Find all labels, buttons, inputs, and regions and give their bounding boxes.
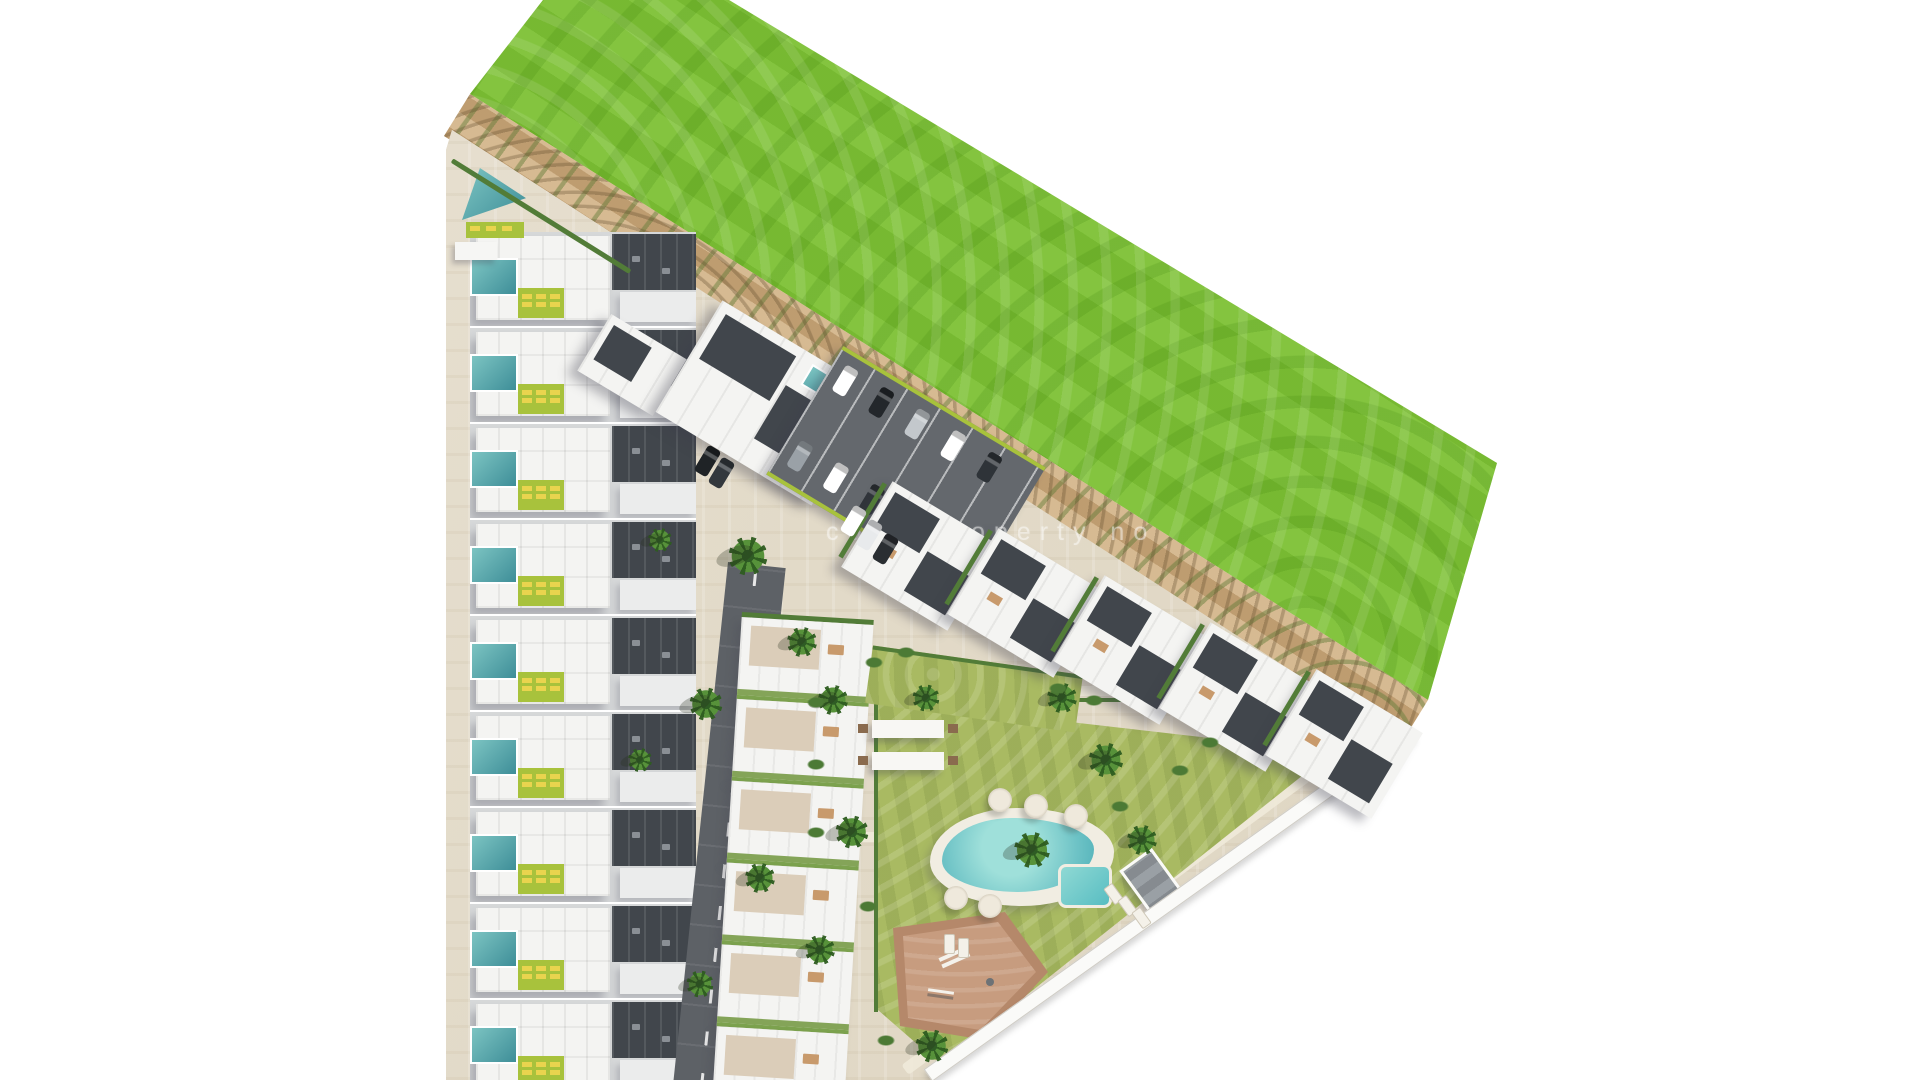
palm-tree [913, 685, 940, 712]
shrub [877, 1035, 895, 1046]
terrace-furniture [632, 928, 640, 934]
shrub [1049, 683, 1067, 694]
townhouse-lawn [518, 960, 564, 990]
townhouse-row [470, 1000, 696, 1080]
roof-terrace-beige [739, 789, 811, 833]
sun-lounger [550, 966, 560, 971]
terrace-table [823, 726, 840, 737]
palm-tree [648, 528, 672, 552]
umbrella [1064, 804, 1088, 828]
terrace-furniture [632, 256, 640, 262]
sun-lounger [536, 486, 546, 491]
terrace-table [808, 972, 825, 983]
sun-lounger [550, 582, 560, 587]
sun-lounger [522, 390, 532, 395]
pergola [872, 720, 944, 738]
roof-terrace-beige [724, 1035, 796, 1079]
terrace-furniture [632, 736, 640, 742]
terrace-furniture [632, 1024, 640, 1030]
shrub [1171, 765, 1189, 776]
sun-lounger [522, 582, 532, 587]
townhouse-pool [470, 546, 518, 584]
townhouse-row [470, 616, 696, 712]
terrace-furniture [662, 844, 670, 850]
sun-lounger [550, 678, 560, 683]
sun-lounger [522, 678, 532, 683]
middle-apartment-row [732, 699, 869, 789]
middle-apartment-row [712, 1026, 849, 1080]
car [867, 386, 895, 419]
umbrella [1024, 794, 1048, 818]
terrace-table [813, 890, 830, 901]
palm-tree [690, 688, 723, 721]
terrace-furniture [632, 448, 640, 454]
palm-tree [687, 971, 714, 998]
sun-lounger [536, 390, 546, 395]
townhouse-row [470, 904, 696, 1000]
palm-tree [836, 816, 869, 849]
car [786, 440, 814, 473]
shrub [897, 647, 915, 658]
palm-tree [1127, 825, 1157, 855]
sun-lounger [550, 294, 560, 299]
terrace-furniture [662, 460, 670, 466]
terrace-furniture [632, 640, 640, 646]
roof-terrace-dark [593, 325, 651, 382]
townhouse-roof-terrace [612, 810, 696, 866]
shrub [1085, 695, 1103, 706]
townhouse-row [470, 808, 696, 904]
townhouse-pool [470, 354, 518, 392]
sun-lounger [470, 226, 480, 231]
sun-lounger [486, 226, 496, 231]
pergola [872, 752, 944, 770]
palm-tree [787, 627, 817, 657]
townhouse-pool [470, 642, 518, 680]
terrace-furniture [662, 268, 670, 274]
townhouse-roof-lower [620, 484, 696, 514]
sun-lounger [502, 226, 512, 231]
terrace-table [986, 591, 1003, 606]
terrace-furniture [662, 940, 670, 946]
townhouse-roof-lower [620, 772, 696, 802]
palm-tree [745, 863, 775, 893]
townhouse-roof-lower [620, 580, 696, 610]
townhouse-roof-terrace [612, 618, 696, 674]
terrace-furniture [632, 832, 640, 838]
sun-lounger [522, 1062, 532, 1067]
roof-terrace-beige [744, 707, 816, 751]
sun-lounger [536, 294, 546, 299]
townhouse-pool [470, 258, 518, 296]
terrace-table [803, 1054, 820, 1065]
townhouse-pool [470, 450, 518, 488]
corner-pergola [455, 242, 497, 260]
townhouse-roof-terrace [612, 426, 696, 482]
palm-tree [628, 748, 652, 772]
sun-lounger [536, 774, 546, 779]
shrub [807, 759, 825, 770]
townhouse-lawn [518, 768, 564, 798]
townhouse-pool [470, 834, 518, 872]
terrace-furniture [662, 1036, 670, 1042]
car [831, 364, 859, 397]
palm-tree [916, 1030, 949, 1063]
townhouse-lawn [518, 288, 564, 318]
sun-lounger [522, 486, 532, 491]
townhouse-lawn [518, 672, 564, 702]
swimming-pool-extension [1058, 864, 1112, 908]
terrace-table [1198, 685, 1215, 700]
sun-lounger [536, 966, 546, 971]
terrace-table [1304, 732, 1321, 747]
palm-tree [1014, 832, 1050, 868]
umbrella [944, 886, 968, 910]
townhouse-row [470, 232, 696, 328]
townhouse-roof-lower [620, 868, 696, 898]
sun-lounger [536, 870, 546, 875]
terrace-table [818, 808, 835, 819]
townhouse-lawn [518, 480, 564, 510]
sun-lounger [550, 774, 560, 779]
sun-lounger [944, 934, 955, 954]
townhouse-pool [470, 738, 518, 776]
sun-lounger [522, 966, 532, 971]
shrub [807, 827, 825, 838]
shrub [859, 901, 877, 912]
car [939, 429, 967, 462]
umbrella [988, 788, 1012, 812]
terrace-furniture [662, 748, 670, 754]
townhouse-roof-lower [620, 292, 696, 322]
townhouse-lawn [518, 576, 564, 606]
sun-lounger [536, 1062, 546, 1067]
roof-terrace-beige [729, 953, 801, 997]
shrub [1111, 801, 1129, 812]
terrace-furniture [662, 556, 670, 562]
townhouse-row [470, 712, 696, 808]
shrub [1201, 737, 1219, 748]
terrace-furniture [662, 652, 670, 658]
townhouse-lawn [518, 384, 564, 414]
townhouse-roof-terrace [612, 906, 696, 962]
sun-lounger [550, 486, 560, 491]
terrace-furniture [632, 544, 640, 550]
car [903, 407, 931, 440]
townhouse-roof-terrace [612, 234, 696, 290]
shrub [807, 697, 825, 708]
townhouse-pool [470, 930, 518, 968]
sun-lounger [536, 582, 546, 587]
palm-tree [729, 537, 768, 576]
car [822, 461, 850, 494]
terrace-table [828, 644, 845, 655]
palm-tree [805, 935, 835, 965]
site-plan-canvas: costaproperty no [0, 0, 1920, 1080]
townhouse-lawn [518, 864, 564, 894]
sun-lounger [522, 294, 532, 299]
sun-lounger [522, 870, 532, 875]
sun-lounger [550, 390, 560, 395]
sun-lounger [536, 678, 546, 683]
sun-lounger [550, 1062, 560, 1067]
townhouse-row [470, 424, 696, 520]
roof-terrace-dark [1328, 739, 1393, 803]
townhouse-lawn [518, 1056, 564, 1080]
terrace-table [1092, 638, 1109, 653]
palm-tree [1089, 743, 1124, 778]
sun-lounger [550, 870, 560, 875]
lawn-hedge-border [874, 700, 878, 1012]
sun-lounger [522, 774, 532, 779]
car [975, 451, 1003, 484]
shrub [865, 657, 883, 668]
corner-lawn [466, 222, 524, 238]
umbrella [978, 894, 1002, 918]
playground-spring-toy [986, 978, 994, 986]
middle-apartment-row [717, 944, 854, 1034]
townhouse-pool [470, 1026, 518, 1064]
sun-lounger [958, 938, 969, 958]
